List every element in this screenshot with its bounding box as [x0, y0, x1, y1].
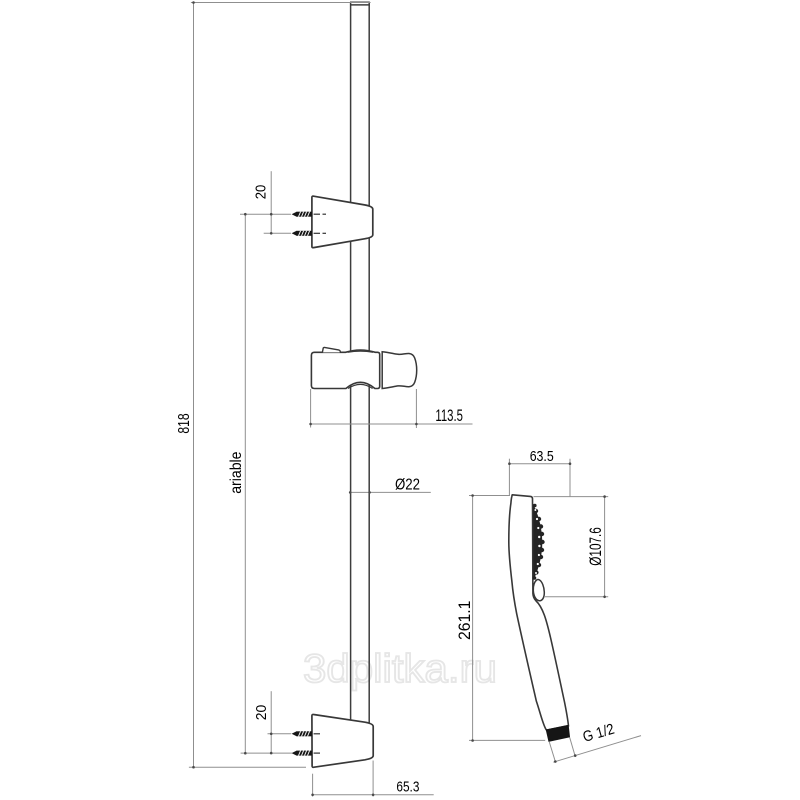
svg-text:818: 818 [176, 413, 193, 433]
svg-text:G 1/2: G 1/2 [581, 721, 616, 746]
svg-text:261.1: 261.1 [456, 601, 474, 640]
svg-text:Ø22: Ø22 [395, 477, 420, 494]
svg-text:20: 20 [253, 185, 270, 200]
svg-text:20: 20 [253, 705, 270, 721]
svg-text:63.5: 63.5 [530, 448, 554, 465]
svg-text:113.5: 113.5 [435, 407, 463, 425]
svg-text:ariable: ariable [228, 452, 245, 494]
svg-text:Ø107.6: Ø107.6 [587, 527, 605, 566]
svg-text:3dplitka.ru: 3dplitka.ru [303, 647, 497, 691]
svg-text:65.3: 65.3 [396, 779, 419, 795]
